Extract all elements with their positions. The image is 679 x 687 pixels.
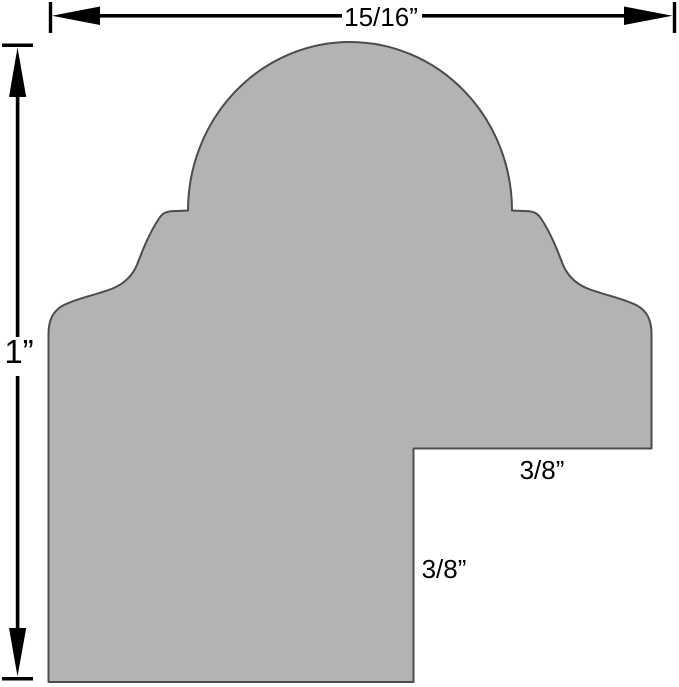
technical-drawing-canvas: 15/16” 1” 3/8” 3/8” [0, 0, 679, 687]
height-dim-tick-bottom [2, 677, 33, 681]
width-dim-line-left [96, 14, 342, 18]
height-dim-label: 1” [4, 333, 33, 370]
rabbet-width-label: 3/8” [520, 455, 565, 485]
height-dim-line-upper [16, 95, 20, 337]
height-dim-line-lower [16, 376, 20, 630]
width-dim-label: 15/16” [344, 2, 418, 32]
moulding-profile-diagram: 15/16” 1” 3/8” 3/8” [0, 0, 679, 687]
rabbet-depth-label: 3/8” [422, 554, 467, 584]
width-dim-tick-left [49, 2, 52, 33]
width-dim-tick-right [673, 2, 676, 33]
height-dim-tick-top [2, 44, 33, 48]
width-dim-line-right [422, 14, 628, 18]
